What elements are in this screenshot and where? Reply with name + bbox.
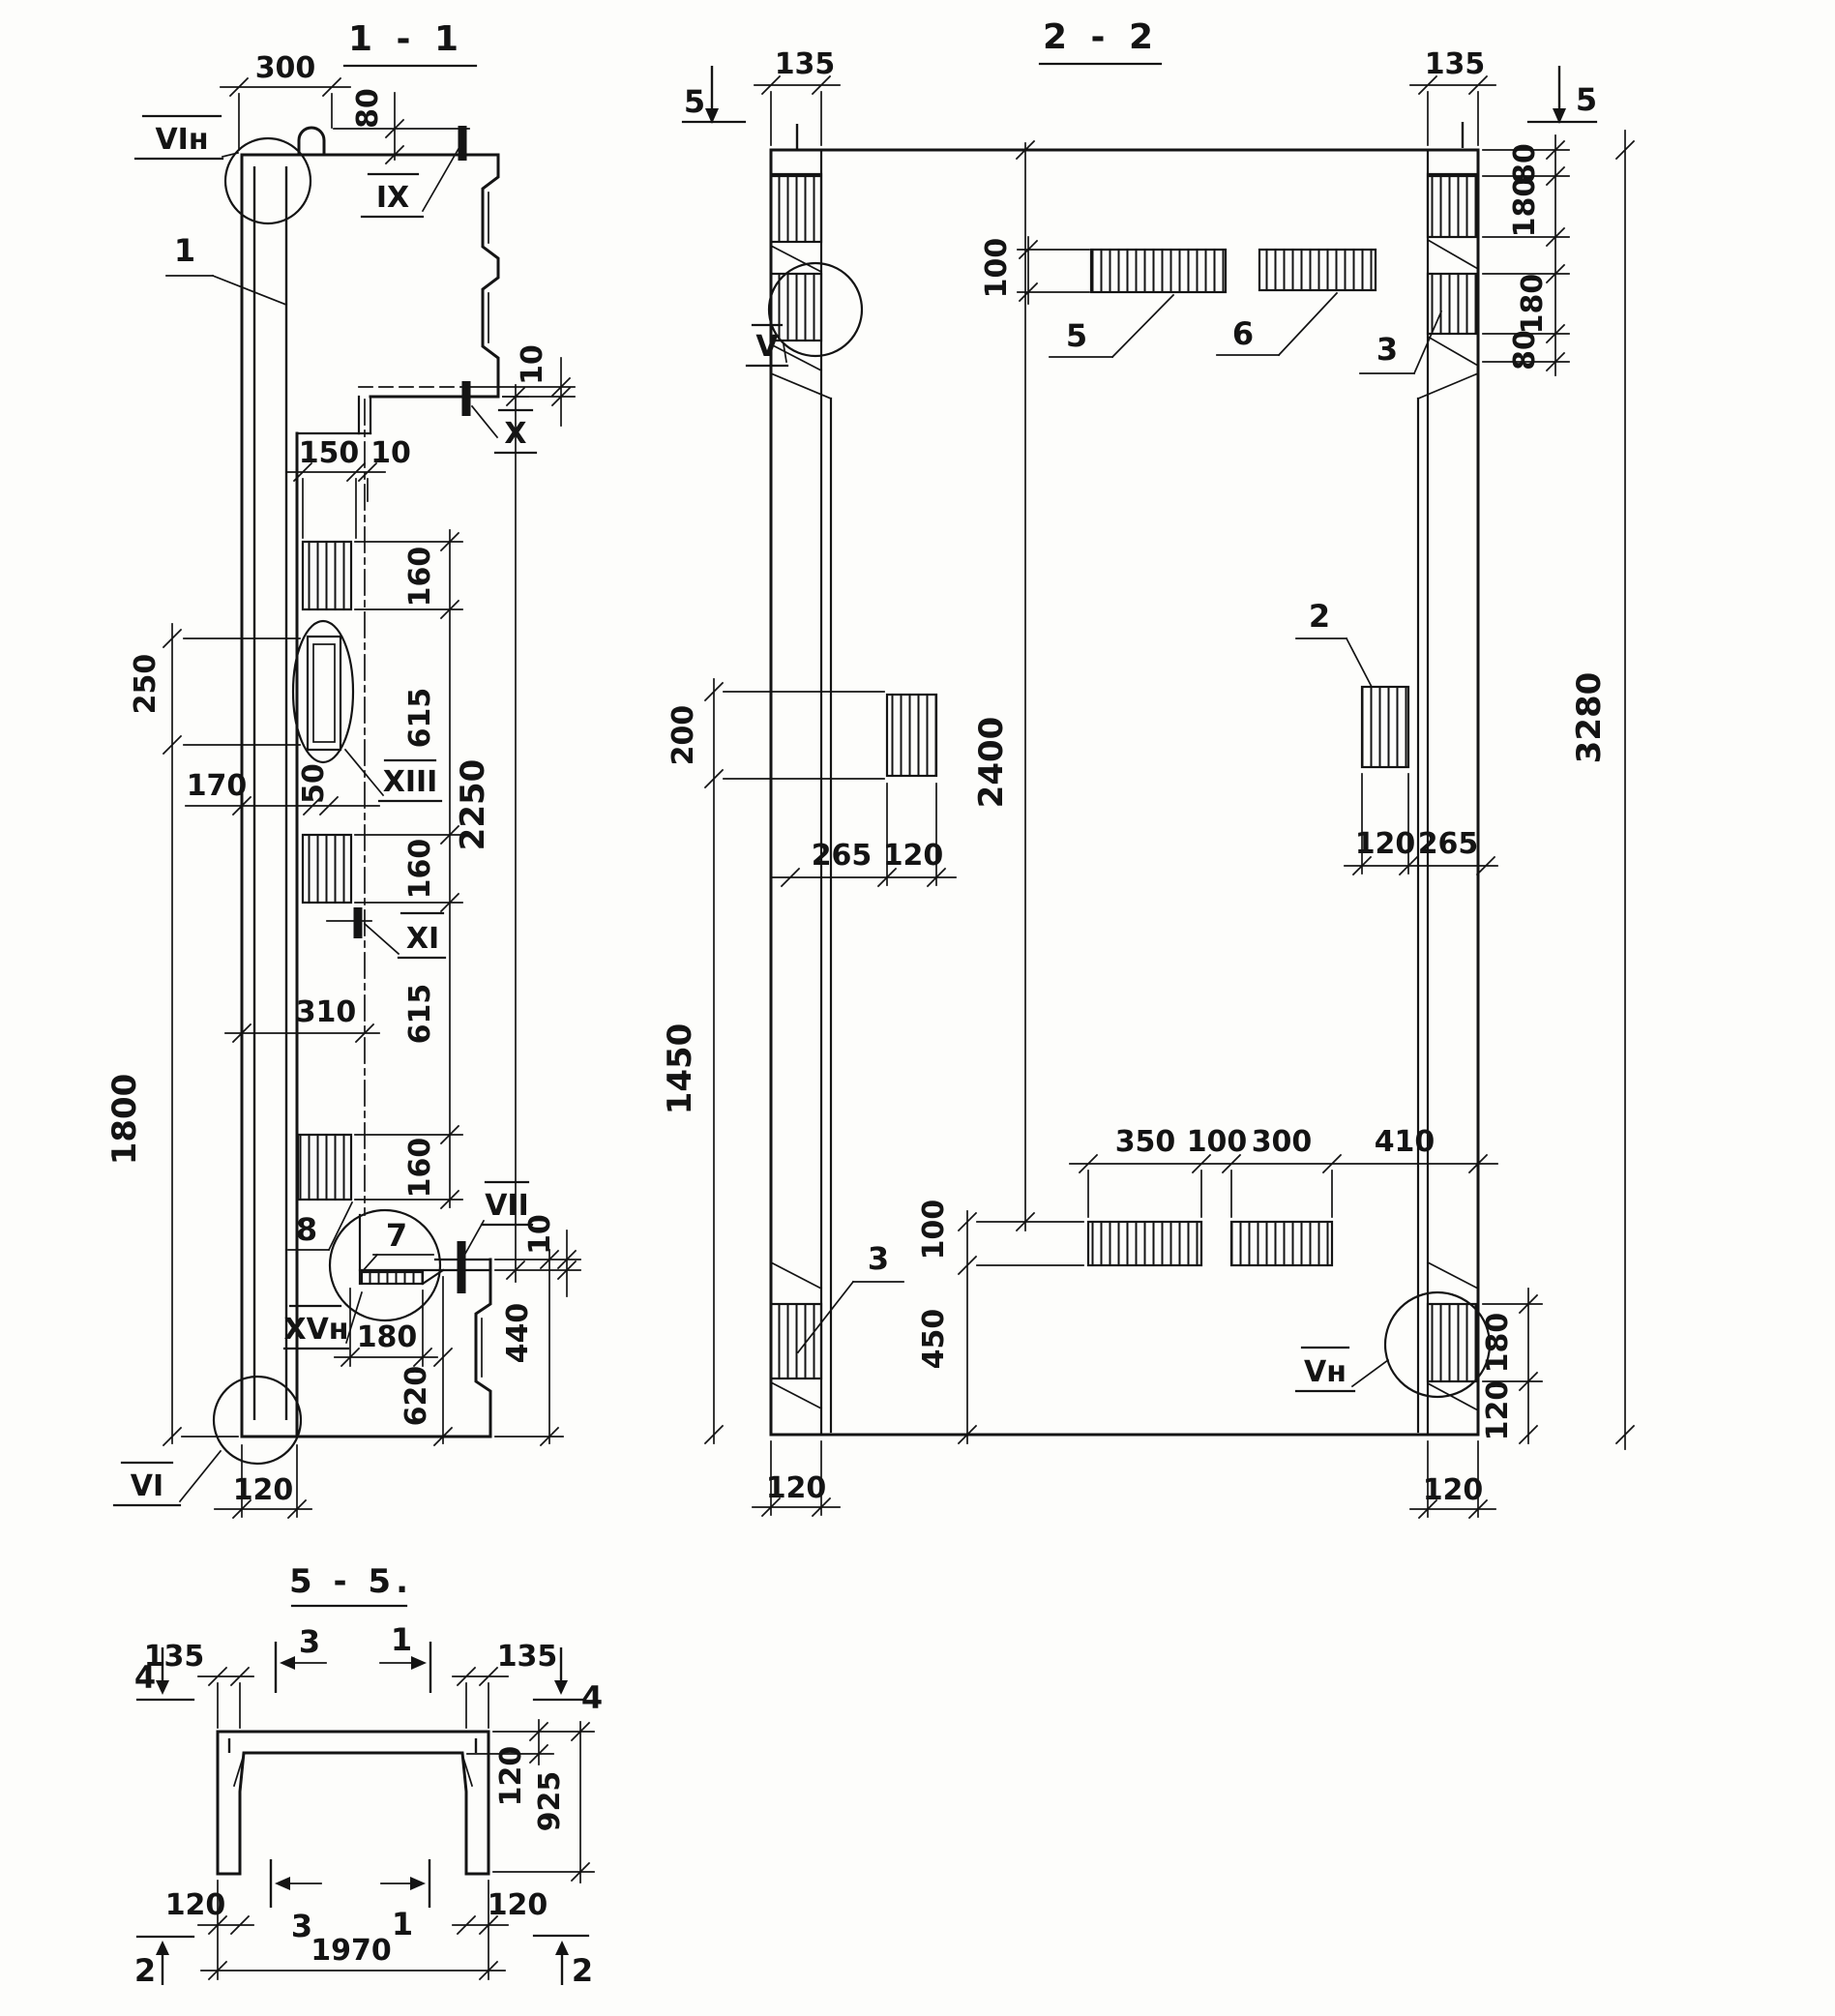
svg-text:150: 150: [299, 436, 360, 470]
dim-170-50: 170 50: [186, 763, 379, 815]
svg-text:135: 135: [497, 1640, 558, 1674]
svg-text:120: 120: [1481, 1380, 1515, 1441]
svg-text:1450: 1450: [661, 1023, 699, 1115]
dim-265-120-left: 265 120: [772, 784, 956, 886]
detail-circle-vi: [214, 1377, 301, 1464]
svg-text:VIн: VIн: [155, 123, 208, 157]
svg-text:310: 310: [296, 995, 357, 1029]
svg-text:50: 50: [297, 763, 331, 804]
drawing-canvas: 1 - 1 300 80: [0, 0, 1835, 2016]
detail-circle-vih: [225, 138, 311, 223]
svg-text:5: 5: [684, 83, 705, 120]
svg-text:VII: VII: [485, 1189, 529, 1223]
section-2-2: 2 - 2 5 135: [661, 17, 1634, 1518]
svg-text:170: 170: [187, 769, 248, 803]
svg-text:100: 100: [980, 238, 1014, 299]
embedded-plate-2: [1362, 687, 1408, 767]
dim-120-leg-right: 120: [453, 1888, 548, 1934]
section-1-1: 1 - 1 300 80: [105, 19, 580, 1518]
dim-chain-top-right: 80 180 180 80: [1483, 135, 1569, 375]
embedded-plate: [1088, 1222, 1201, 1265]
svg-text:V: V: [755, 330, 779, 364]
lifting-loop: [299, 128, 324, 155]
svg-text:3: 3: [291, 1908, 312, 1944]
section-2-2-title: 2 - 2: [1043, 17, 1159, 57]
svg-text:135: 135: [775, 47, 836, 81]
svg-text:1970: 1970: [311, 1934, 392, 1968]
dim-135-right: 135: [1410, 47, 1495, 145]
svg-text:2: 2: [1309, 598, 1330, 635]
embedded-plate: [303, 542, 351, 609]
svg-text:620: 620: [400, 1366, 433, 1427]
svg-text:265: 265: [812, 839, 873, 873]
svg-text:10: 10: [523, 1214, 557, 1255]
leader-label-1: 1: [166, 232, 286, 305]
dim-10-top: 10: [466, 344, 575, 426]
cut-mark-3-bottom: 3: [271, 1859, 321, 1944]
wall-plate-vn: [1428, 1304, 1478, 1381]
svg-text:VI: VI: [131, 1469, 163, 1503]
wall-plate: [1428, 176, 1478, 237]
section-mark-ix: IX: [362, 126, 462, 217]
svg-text:XIII: XIII: [383, 765, 438, 799]
section-mark-vii: VII: [461, 1182, 532, 1293]
section-mark-xi: XI: [327, 907, 445, 958]
svg-text:2250: 2250: [454, 759, 492, 851]
svg-text:80: 80: [1508, 330, 1542, 371]
svg-text:120: 120: [1355, 827, 1416, 861]
dim-2250: 2250: [454, 385, 528, 1282]
cut-mark-1-bottom: 1: [381, 1859, 429, 1942]
svg-text:160: 160: [403, 839, 437, 900]
cut-mark-2-right: 2: [534, 1936, 593, 1989]
drawing-sheet: 1 - 1 300 80: [0, 0, 1835, 2016]
svg-text:6: 6: [1232, 315, 1254, 352]
dim-100-top: 100: [980, 237, 1089, 304]
embedded-plate-5: [1091, 250, 1226, 292]
dim-120-leg-left: 120: [165, 1888, 253, 1934]
embedded-plate: [1231, 1222, 1332, 1265]
svg-text:IX: IX: [376, 181, 409, 215]
svg-text:440: 440: [501, 1303, 535, 1364]
dim-120-265-right: 120 265: [1345, 774, 1497, 875]
svg-text:80: 80: [351, 88, 385, 129]
channel-outline: [218, 1732, 488, 1874]
section-1-1-title: 1 - 1: [348, 19, 464, 59]
svg-text:300: 300: [1252, 1125, 1313, 1159]
svg-text:300: 300: [255, 51, 316, 85]
leader-label-2: 2: [1296, 598, 1372, 687]
svg-text:4: 4: [581, 1679, 603, 1716]
leader-label-plate6: 6: [1217, 293, 1337, 355]
svg-text:925: 925: [533, 1771, 567, 1832]
detail-oval-xiii: [293, 621, 353, 762]
dim-3280: 3280: [1570, 131, 1634, 1449]
section-mark-xiii: XIII: [345, 750, 441, 801]
svg-text:100: 100: [917, 1200, 951, 1260]
svg-text:160: 160: [403, 1138, 437, 1199]
dim-80: 80: [334, 88, 469, 163]
svg-text:3: 3: [1376, 331, 1398, 368]
dim-chain-left: 250 1800: [105, 624, 300, 1445]
dim-row-bottom: 350 100 300 410: [1070, 1125, 1497, 1217]
section-mark-vn: Vн: [1296, 1348, 1388, 1391]
svg-text:3: 3: [868, 1240, 889, 1277]
cut-mark-5-right: 5: [1528, 66, 1597, 124]
dim-135-right-55: 135: [453, 1640, 557, 1728]
svg-text:410: 410: [1375, 1125, 1435, 1159]
svg-text:350: 350: [1115, 1125, 1176, 1159]
cut-mark-3-top: 3: [276, 1623, 326, 1693]
svg-text:100: 100: [1187, 1125, 1248, 1159]
cut-mark-2-left: 2: [134, 1937, 193, 1989]
svg-text:2: 2: [572, 1952, 593, 1989]
svg-text:7: 7: [386, 1217, 407, 1254]
dim-150-10: 150 10: [286, 436, 411, 538]
svg-text:120: 120: [883, 839, 944, 873]
svg-text:180: 180: [357, 1320, 418, 1354]
svg-text:2: 2: [134, 1952, 156, 1989]
svg-text:120: 120: [165, 1888, 226, 1922]
svg-text:135: 135: [1425, 47, 1486, 81]
dim-120-bottom: 120: [215, 1445, 311, 1518]
dim-300: 300: [221, 51, 350, 150]
svg-text:1800: 1800: [105, 1074, 144, 1166]
svg-text:250: 250: [129, 654, 163, 715]
dim-1970: 1970: [201, 1881, 505, 1979]
svg-text:1: 1: [174, 232, 195, 269]
svg-text:8: 8: [296, 1211, 317, 1248]
dim-120-bottom-left: 120: [753, 1441, 840, 1516]
svg-text:1: 1: [392, 1906, 413, 1942]
svg-text:160: 160: [403, 547, 437, 608]
top-flange-notched-face: [483, 155, 498, 397]
dim-chain-bottom-left: 100 450: [917, 1200, 1083, 1443]
dim-10-bottom: 10: [495, 1214, 580, 1296]
svg-text:615: 615: [403, 984, 437, 1045]
dim-310: 310: [225, 995, 379, 1042]
svg-text:Vн: Vн: [1304, 1355, 1347, 1389]
svg-text:120: 120: [766, 1471, 827, 1505]
svg-text:XI: XI: [406, 922, 439, 956]
dim-180-bottom: 180: [335, 1289, 437, 1366]
svg-text:2400: 2400: [972, 717, 1011, 809]
svg-text:450: 450: [917, 1309, 951, 1370]
svg-text:120: 120: [1423, 1473, 1484, 1507]
dim-440: 440: [495, 1250, 563, 1445]
dim-chain-bottom-right: 180 120: [1481, 1289, 1542, 1443]
svg-text:120: 120: [233, 1473, 294, 1507]
dim-2400: 2400: [972, 141, 1034, 1230]
svg-text:5: 5: [1066, 317, 1087, 354]
wall-plate: [771, 176, 821, 242]
svg-text:180: 180: [1481, 1313, 1515, 1374]
embedded-plate-8: [298, 1135, 351, 1200]
dim-120-bottom-right: 120: [1410, 1441, 1495, 1518]
dim-chain-right: 160 615 160 615 160: [355, 530, 462, 1208]
embedded-plate: [887, 695, 936, 776]
section-mark-x: X: [466, 381, 536, 453]
svg-text:265: 265: [1418, 827, 1479, 861]
svg-text:120: 120: [488, 1888, 548, 1922]
section-mark-vi: VI: [114, 1451, 221, 1505]
svg-text:135: 135: [144, 1640, 205, 1674]
embedded-plate: [303, 835, 351, 903]
section-5-5: 5 - 5. 4 135 3 1 135: [134, 1562, 603, 1989]
svg-text:180: 180: [1508, 177, 1542, 238]
svg-text:200: 200: [666, 705, 700, 766]
svg-text:120: 120: [494, 1746, 528, 1807]
bottom-flange-notched-face: [476, 1260, 490, 1437]
cut-mark-5-left: 5: [683, 66, 745, 124]
svg-text:10: 10: [516, 344, 549, 385]
leader-label-plate5: 5: [1050, 295, 1173, 357]
weld-seam: [362, 1272, 423, 1284]
wall-plate-3: [771, 1304, 821, 1379]
cut-mark-1-top: 1: [380, 1621, 430, 1693]
embedded-plate-6: [1259, 250, 1376, 290]
svg-text:615: 615: [403, 688, 437, 749]
svg-text:1: 1: [391, 1621, 412, 1658]
wall-plate: [771, 274, 821, 341]
svg-text:XVн: XVн: [283, 1313, 348, 1347]
svg-text:3: 3: [299, 1623, 320, 1660]
svg-text:5: 5: [1576, 81, 1597, 118]
svg-text:3280: 3280: [1570, 672, 1609, 764]
section-5-5-title: 5 - 5.: [289, 1562, 413, 1601]
section-mark-vih: VIн: [135, 116, 238, 159]
svg-text:180: 180: [1516, 274, 1550, 335]
svg-text:10: 10: [370, 436, 411, 470]
